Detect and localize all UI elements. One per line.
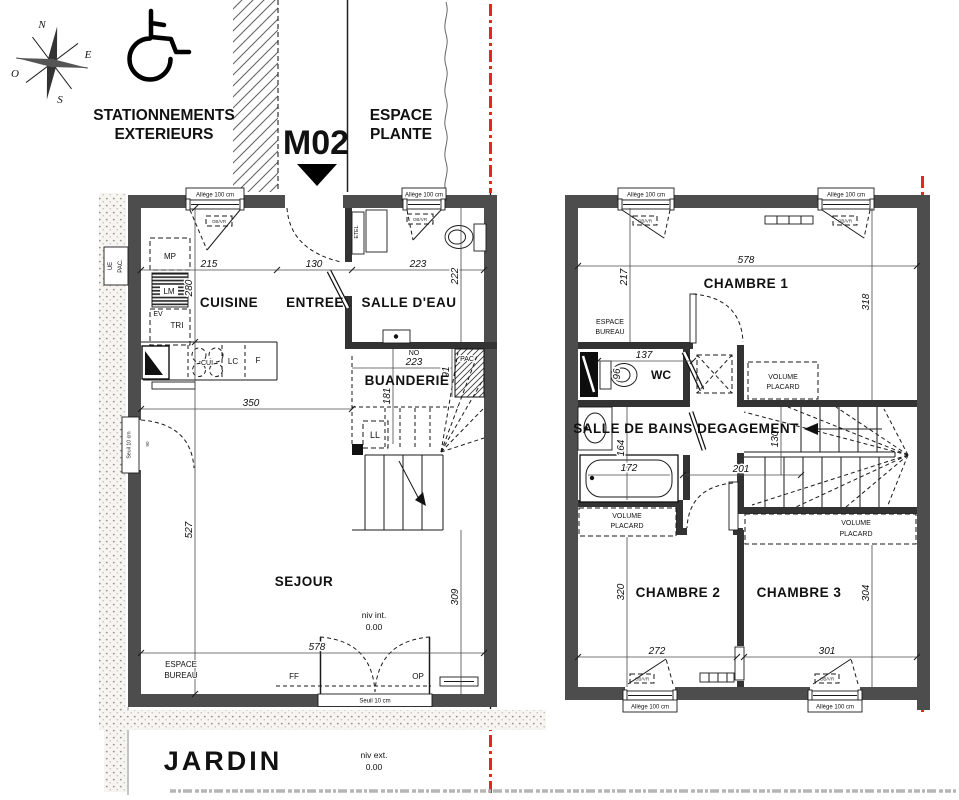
gf-heatpump-unit: UE PAC. xyxy=(104,247,128,285)
dim-137: 137 xyxy=(636,350,653,361)
dim-223b: 223 xyxy=(405,357,423,368)
unit-entrance-arrow-icon xyxy=(297,164,337,186)
threshold-label: Seuil 10 cm xyxy=(127,431,133,458)
compass-rose-icon: N E O S xyxy=(11,19,93,106)
ff-closet-top: VOLUME PLACARD xyxy=(748,362,818,399)
dim-181: 181 xyxy=(382,388,393,405)
oven-label: F xyxy=(256,356,261,365)
dim-130: 130 xyxy=(306,259,323,270)
closet-label-line1: VOLUME xyxy=(612,513,642,520)
room-label-sdb: SALLE DE BAINS xyxy=(573,421,693,436)
planted-area-label-line2: PLANTE xyxy=(370,126,432,143)
room-label-chambre3: CHAMBRE 3 xyxy=(757,585,842,600)
compass-east-label: E xyxy=(84,49,92,61)
gf-office-label-line2: BUREAU xyxy=(164,671,198,680)
heatpump-label-line2: PAC. xyxy=(118,259,124,273)
toilet-icon xyxy=(474,224,486,251)
window-type-label: OB/VR xyxy=(635,677,650,682)
room-label-salle-eau: SALLE D'EAU xyxy=(362,295,457,310)
dim-217: 217 xyxy=(619,268,630,286)
ff-closet-left: VOLUME PLACARD xyxy=(579,508,676,536)
wheelchair-icon xyxy=(130,11,190,80)
interior-level-value: 0.00 xyxy=(366,622,383,632)
dishwasher-label: LC xyxy=(228,357,238,366)
compass-north-label: N xyxy=(37,19,46,31)
ff-office-label-line2: BUREAU xyxy=(595,329,624,336)
op-window-label: OP xyxy=(412,672,424,681)
water-heater-label: ETEL xyxy=(354,225,360,238)
ff-chambre3-door xyxy=(735,647,744,680)
dim-201: 201 xyxy=(732,464,750,475)
gf-shower-room-fixtures: ETEL xyxy=(352,210,486,343)
floorplan-drawing: N E O S STATIONNEMENTS EXTERIEURS M02 ES… xyxy=(0,0,959,800)
room-label-chambre2: CHAMBRE 2 xyxy=(636,585,721,600)
dim-223: 223 xyxy=(409,259,427,270)
ff-radiator-top xyxy=(765,216,813,224)
unit-label: M02 xyxy=(283,124,349,162)
gf-side-door: Seuil 10 cm 90 xyxy=(122,417,194,473)
dim-309: 309 xyxy=(450,588,461,605)
ff-top-window-2: Allège 100 cm OB/VR xyxy=(818,188,874,238)
gf-office-label-line1: ESPACE xyxy=(165,660,197,669)
ff-bottom-window-2: Allège 100 cm OB/VR xyxy=(808,659,862,712)
first-floor-plan: Allège 100 cm OB/VR Allège 100 cm OB/VR … xyxy=(565,188,930,712)
window-type-label: OB/VR xyxy=(820,677,835,682)
closet-label-line1: VOLUME xyxy=(841,520,871,527)
compass-south-label: S xyxy=(57,94,63,106)
window-type-label: OB/VR xyxy=(838,219,853,224)
dim-304: 304 xyxy=(861,584,872,601)
interior-level-label: niv int. xyxy=(362,610,387,620)
dim-90: 90 xyxy=(145,441,150,447)
dim-318: 318 xyxy=(861,293,872,310)
hob-label: CUI xyxy=(201,360,213,367)
gf-dimensions: 215 130 223 280 527 222 309 223 NO 91 18… xyxy=(138,205,487,697)
kitchen-tri-label: TRI xyxy=(171,321,184,330)
ff-bottom-window-1: Allège 100 cm OB/VR xyxy=(623,659,677,712)
ground-floor-plan: Allège 100 cm OB/VR Allège 100 cm OB/VR … xyxy=(99,188,546,792)
dim-96: 96 xyxy=(612,368,623,380)
exterior-level-label: niv ext. xyxy=(361,750,388,760)
toilet-icon xyxy=(600,361,611,389)
planted-area-edge xyxy=(445,2,447,192)
parking-label-line2: EXTERIEURS xyxy=(114,126,213,143)
dim-301: 301 xyxy=(819,646,836,657)
dim-164: 164 xyxy=(616,439,627,456)
ff-top-window-1: Allège 100 cm OB/VR xyxy=(618,188,674,238)
closet-label-line2: PLACARD xyxy=(610,523,643,530)
room-label-cuisine: CUISINE xyxy=(200,295,258,310)
ff-closet-right: VOLUME PLACARD xyxy=(745,514,916,544)
kitchen-sink-label: EV xyxy=(153,311,163,318)
closet-label-line1: VOLUME xyxy=(768,374,798,381)
closet-label-line2: PLACARD xyxy=(766,384,799,391)
closet-label-line2: PLACARD xyxy=(839,531,872,538)
window-type-label: OB/VR xyxy=(638,219,653,224)
allege-label: Allège 100 cm xyxy=(196,193,234,199)
ff-radiator-chambre2 xyxy=(700,673,734,682)
kitchen-lm-label: LM xyxy=(163,287,174,296)
floorplan-sheet: N E O S STATIONNEMENTS EXTERIEURS M02 ES… xyxy=(0,0,959,800)
room-label-sejour: SEJOUR xyxy=(275,574,334,589)
kitchen-mp-label: MP xyxy=(164,252,176,261)
dim-578: 578 xyxy=(738,255,755,266)
exterior-level-value: 0.00 xyxy=(366,762,383,772)
planted-area-label-line1: ESPACE xyxy=(370,107,433,124)
dim-215: 215 xyxy=(200,259,218,270)
ff-wc-fixtures xyxy=(580,352,637,397)
ff-chambre1-door xyxy=(690,294,743,343)
hatched-strip xyxy=(233,0,278,192)
dim-172: 172 xyxy=(621,463,638,474)
dim-578: 578 xyxy=(309,642,326,653)
ff-office-label-line1: ESPACE xyxy=(596,319,624,326)
compass-west-label: O xyxy=(11,68,19,80)
window-type-label: OB/VR xyxy=(212,219,227,224)
threshold-label: Seuil 10 cm xyxy=(359,699,390,705)
room-label-buanderie: BUANDERIE xyxy=(365,373,450,388)
garden-label: JARDIN xyxy=(164,746,283,776)
ff-window-label: FF xyxy=(289,672,299,681)
dim-350: 350 xyxy=(243,398,260,409)
allege-label: Allège 100 cm xyxy=(816,705,854,711)
room-label-wc: WC xyxy=(651,368,671,382)
no-label: NO xyxy=(409,350,420,357)
dim-280: 280 xyxy=(184,279,195,297)
window-type-label: OB/VR xyxy=(413,217,428,222)
pac-label: PAC xyxy=(460,356,474,363)
room-label-chambre1: CHAMBRE 1 xyxy=(704,276,789,291)
washer-slot-label: LL xyxy=(370,430,380,440)
ff-skylight-hatch xyxy=(697,355,732,393)
parking-label-line1: STATIONNEMENTS xyxy=(93,107,235,124)
allege-label: Allège 100 cm xyxy=(627,193,665,199)
gf-entrance-door xyxy=(287,208,348,308)
dim-222: 222 xyxy=(450,267,461,285)
gf-bathroom-window: Allège 100 cm OB/VR xyxy=(402,188,446,240)
heatpump-label-line1: UE xyxy=(108,262,114,270)
stair-direction-arrow xyxy=(399,461,421,503)
dim-272: 272 xyxy=(648,646,666,657)
allege-label: Allège 100 cm xyxy=(631,705,669,711)
allege-label: Allège 100 cm xyxy=(405,193,443,199)
allege-label: Allège 100 cm xyxy=(827,193,865,199)
ff-chambre2-door xyxy=(687,482,738,530)
dim-320: 320 xyxy=(616,583,627,600)
room-label-degagement: DEGAGEMENT xyxy=(697,421,799,436)
room-label-entree: ENTREE xyxy=(286,295,344,310)
dim-527: 527 xyxy=(184,521,195,538)
